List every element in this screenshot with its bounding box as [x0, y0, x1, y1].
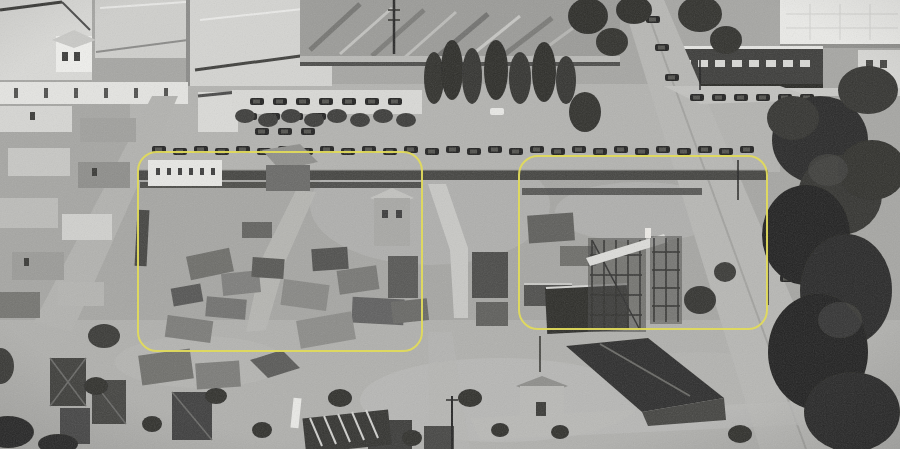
screenshot-root [0, 0, 900, 449]
film-grain-overlay [0, 0, 900, 449]
